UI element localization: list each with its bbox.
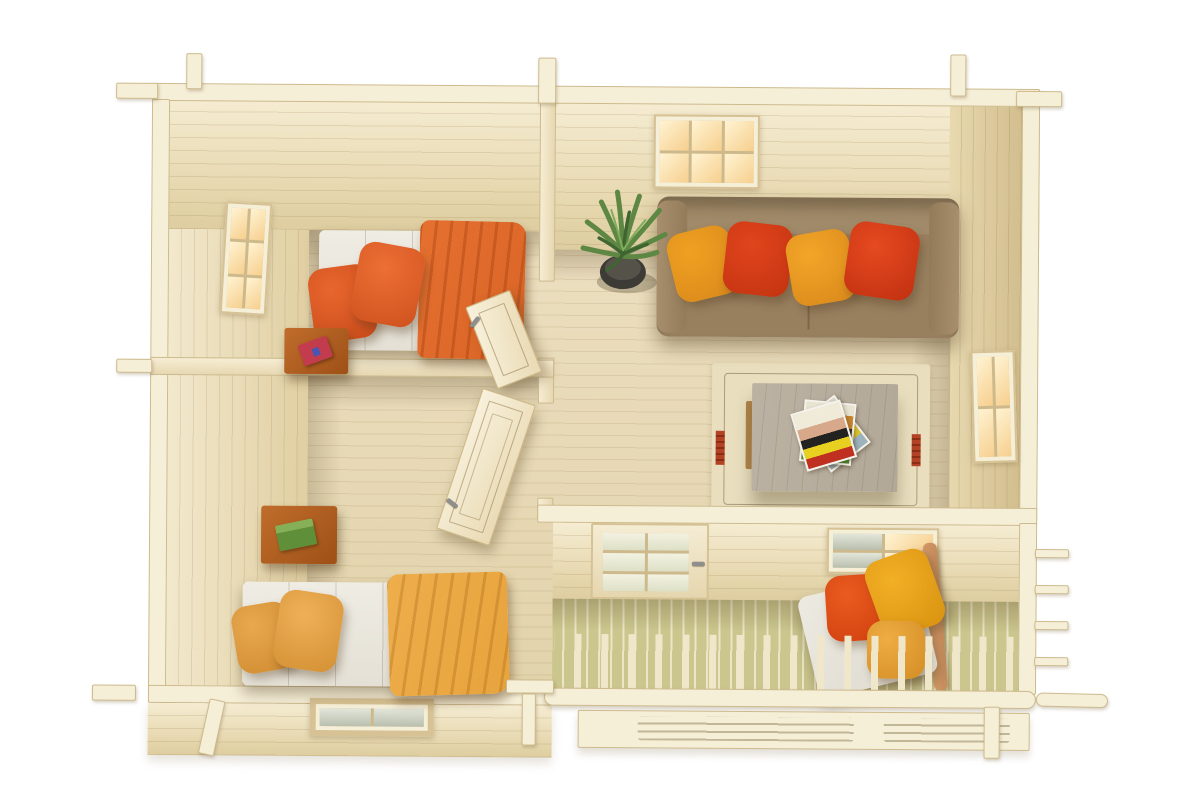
log-end-top-right-up [950, 54, 966, 96]
terrace-door [591, 523, 710, 600]
living-right-window [970, 350, 1017, 463]
window-pane [603, 574, 645, 592]
living-right-window-panes [977, 356, 1012, 457]
window-pane [724, 121, 754, 151]
window-pane [249, 209, 266, 241]
terrace-right-baluster-1 [1035, 549, 1069, 558]
window-pane [320, 708, 371, 726]
bed2-blanket [387, 571, 510, 696]
window-pane [660, 153, 690, 183]
living-top-window [653, 114, 760, 189]
log-end-top-left-up [186, 53, 202, 89]
window-pane [228, 242, 245, 274]
window-pane [647, 554, 689, 572]
partition-vertical-upper [539, 102, 556, 282]
terrace-door-glazing [603, 533, 689, 592]
rug-tassel-right [912, 434, 921, 466]
window-pane [994, 356, 1010, 405]
right-wall-cap [1019, 99, 1040, 523]
window-pane [603, 533, 645, 551]
door-handle [469, 316, 480, 329]
cabin [0, 0, 1200, 800]
bedroom2-exterior-window [310, 698, 434, 737]
green-book [275, 518, 317, 551]
partition-post-end [538, 58, 556, 104]
terrace-front-rail [544, 688, 1036, 709]
potted-plant [577, 186, 670, 299]
rug-tassel-left [716, 431, 725, 465]
log-end-bottom-left-out [92, 684, 136, 700]
sofa [656, 196, 959, 338]
bedroom2-exterior-window-panes [320, 708, 424, 727]
step-slots-left [638, 716, 854, 742]
window-pane [692, 121, 722, 151]
window-pane [724, 153, 754, 183]
window-pane [373, 708, 424, 726]
window-pane [245, 277, 262, 309]
magazine-stack [794, 401, 866, 466]
front-rail-balusters [554, 634, 1016, 691]
rail-end-extension [1036, 692, 1108, 708]
window-pane [978, 408, 994, 457]
terrace-right-rail [1018, 523, 1037, 695]
terrace-right-baluster-4 [1034, 657, 1068, 666]
window-pane [692, 153, 722, 183]
blue-bookmark [312, 347, 321, 357]
window-pane [647, 533, 689, 551]
bedroom1-side-window-panes [226, 208, 266, 310]
log-end-terrace-post-down [984, 707, 1000, 759]
bed2-nightstand [261, 506, 337, 565]
bedroom1-side-window [220, 201, 273, 316]
red-book [298, 336, 334, 367]
window-pane [833, 534, 882, 550]
step-left-post [522, 693, 536, 745]
terrace-right-baluster-2 [1035, 585, 1069, 594]
door-handle [692, 562, 705, 566]
bed1-nightstand [284, 328, 348, 374]
partition-log-end-left [116, 359, 152, 373]
sofa-arm-right [928, 202, 959, 334]
window-pane [977, 357, 993, 406]
window-pane [660, 120, 690, 150]
window-pane [996, 408, 1012, 457]
top-wall-face-left [153, 99, 556, 232]
sofa-pillow-red-1 [721, 220, 795, 299]
window-pane [603, 553, 645, 571]
log-end-top-left-out [116, 83, 158, 99]
step-left-beam [506, 679, 554, 693]
render-canvas [0, 0, 1200, 800]
window-pane [647, 574, 689, 592]
terrace-right-baluster-3 [1034, 621, 1068, 630]
sofa-pillow-red-2 [842, 219, 922, 302]
log-end-top-right-out [1016, 91, 1062, 107]
bed2-pillow-right [271, 588, 346, 675]
window-pane [230, 208, 247, 240]
window-pane [226, 276, 243, 308]
living-top-window-panes [660, 120, 754, 183]
window-pane [247, 243, 264, 275]
